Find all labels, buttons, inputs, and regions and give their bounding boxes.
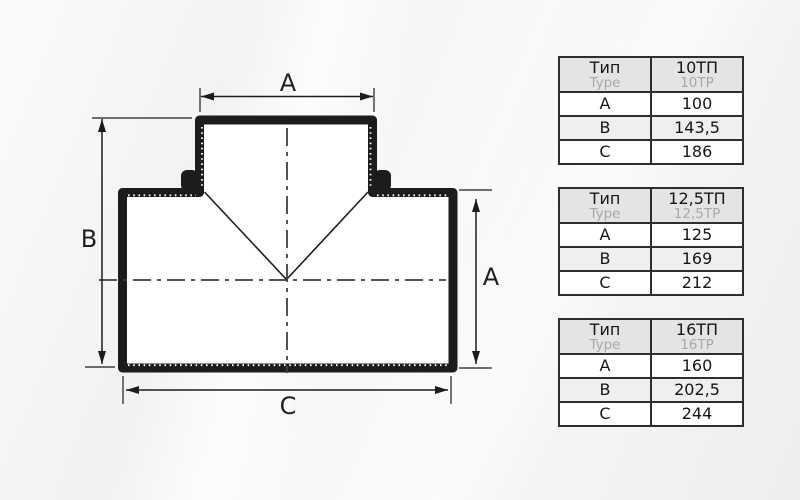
left-weld-collar <box>181 170 198 191</box>
dim-cell: C <box>559 402 651 426</box>
table-row: A 125 <box>559 223 743 247</box>
dim-cell: B <box>559 247 651 271</box>
value-cell: 160 <box>651 354 743 378</box>
value-cell: 212 <box>651 271 743 295</box>
spec-table-10tp: Тип Type 10ТП 10TP A 100 B 143,5 C 186 <box>558 56 744 165</box>
value-cell: 100 <box>651 92 743 116</box>
value-cell: 125 <box>651 223 743 247</box>
dim-label-a-top: A <box>280 69 297 97</box>
value-cell: 169 <box>651 247 743 271</box>
type-label-ru: Тип <box>560 190 650 207</box>
model-header-cell: 16ТП 16TP <box>651 319 743 354</box>
model-label-en: 10TP <box>652 76 742 90</box>
dim-cell: A <box>559 92 651 116</box>
table-header-row: Тип Type 10ТП 10TP <box>559 57 743 92</box>
dim-cell: B <box>559 378 651 402</box>
table-row: A 160 <box>559 354 743 378</box>
type-label-en: Type <box>560 76 650 90</box>
type-header-cell: Тип Type <box>559 57 651 92</box>
type-label-en: Type <box>560 207 650 221</box>
dim-cell: C <box>559 140 651 164</box>
model-label-ru: 10ТП <box>652 59 742 76</box>
model-header-cell: 12,5ТП 12,5TP <box>651 188 743 223</box>
model-header-cell: 10ТП 10TP <box>651 57 743 92</box>
table-row: A 100 <box>559 92 743 116</box>
dim-cell: B <box>559 116 651 140</box>
value-cell: 244 <box>651 402 743 426</box>
table-row: C 212 <box>559 271 743 295</box>
type-label-en: Type <box>560 338 650 352</box>
table-row: C 186 <box>559 140 743 164</box>
model-label-ru: 16ТП <box>652 321 742 338</box>
type-header-cell: Тип Type <box>559 188 651 223</box>
table-row: B 169 <box>559 247 743 271</box>
table-row: B 143,5 <box>559 116 743 140</box>
model-label-en: 16TP <box>652 338 742 352</box>
model-label-ru: 12,5ТП <box>652 190 742 207</box>
type-header-cell: Тип Type <box>559 319 651 354</box>
dim-label-c-bottom: C <box>280 392 297 420</box>
right-weld-collar <box>374 170 391 191</box>
type-label-ru: Тип <box>560 59 650 76</box>
model-label-en: 12,5TP <box>652 207 742 221</box>
table-header-row: Тип Type 12,5ТП 12,5TP <box>559 188 743 223</box>
value-cell: 202,5 <box>651 378 743 402</box>
table-row: C 244 <box>559 402 743 426</box>
dim-cell: A <box>559 223 651 247</box>
tee-technical-drawing: A B A C <box>0 0 540 500</box>
value-cell: 186 <box>651 140 743 164</box>
spec-table-16tp: Тип Type 16ТП 16TP A 160 B 202,5 C 244 <box>558 318 744 427</box>
table-header-row: Тип Type 16ТП 16TP <box>559 319 743 354</box>
dim-cell: A <box>559 354 651 378</box>
dim-cell: C <box>559 271 651 295</box>
table-row: B 202,5 <box>559 378 743 402</box>
dim-label-b-left: B <box>81 225 97 253</box>
spec-table-12-5tp: Тип Type 12,5ТП 12,5TP A 125 B 169 C 212 <box>558 187 744 296</box>
type-label-ru: Тип <box>560 321 650 338</box>
value-cell: 143,5 <box>651 116 743 140</box>
dim-label-a-right: A <box>483 263 500 291</box>
